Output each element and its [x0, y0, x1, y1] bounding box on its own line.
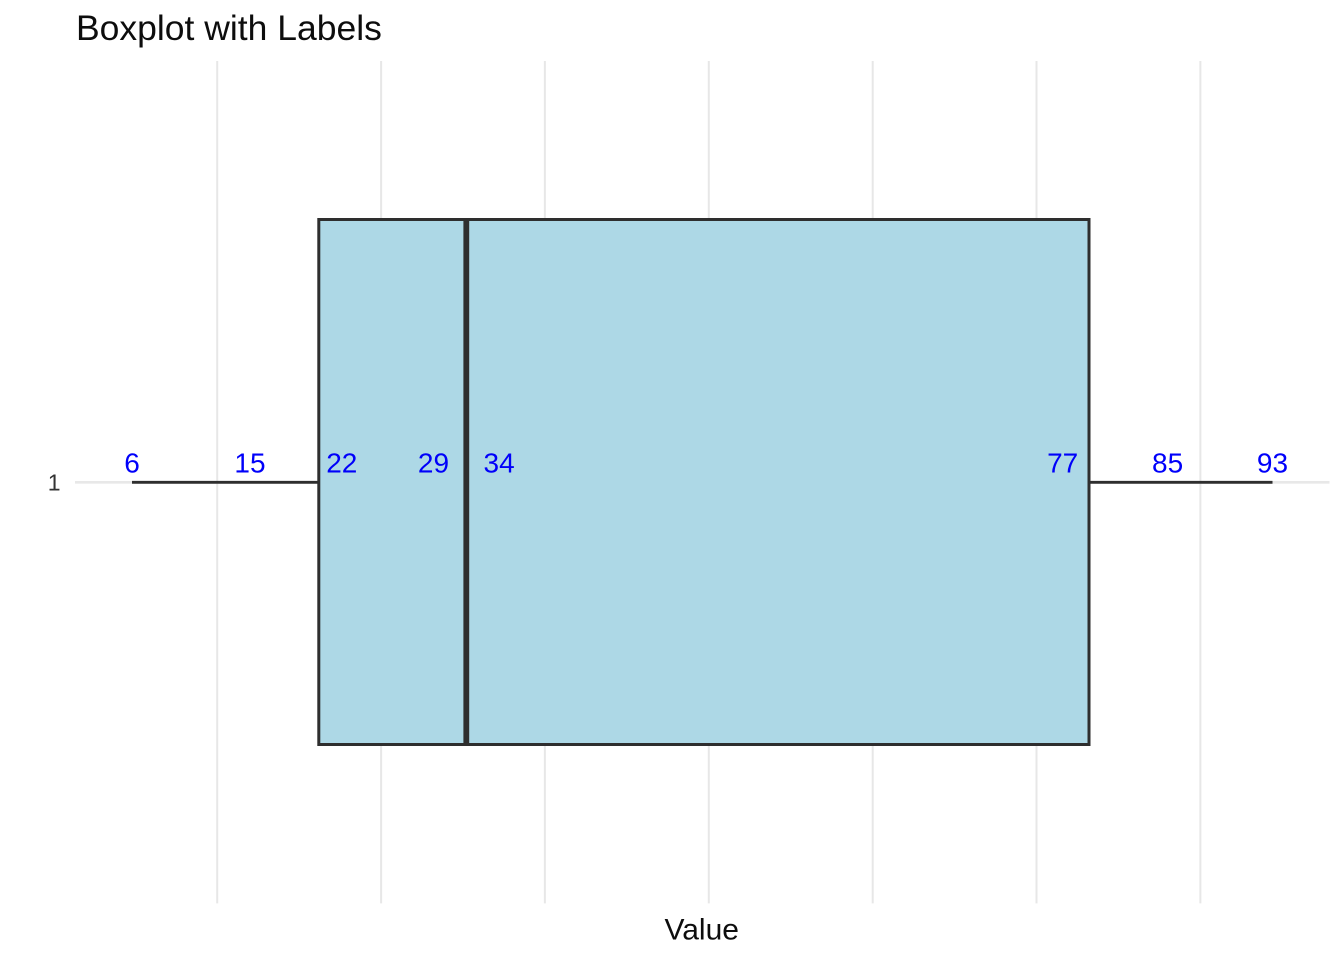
svg-text:1: 1 [48, 470, 61, 496]
svg-text:22: 22 [326, 447, 357, 478]
svg-text:6: 6 [124, 447, 140, 478]
svg-text:29: 29 [418, 447, 449, 478]
svg-text:85: 85 [1152, 447, 1183, 478]
svg-text:34: 34 [484, 447, 515, 478]
svg-text:Boxplot with Labels: Boxplot with Labels [76, 8, 382, 48]
svg-text:Value: Value [664, 914, 739, 947]
svg-text:93: 93 [1257, 447, 1288, 478]
svg-text:77: 77 [1047, 447, 1078, 478]
svg-text:15: 15 [234, 447, 265, 478]
